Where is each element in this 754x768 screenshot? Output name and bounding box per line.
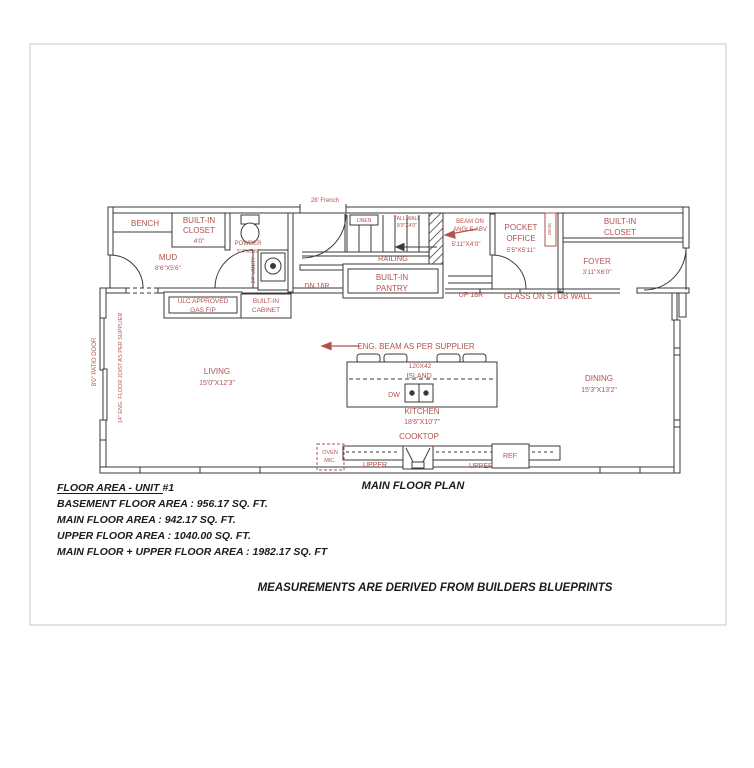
upper-area-line: UPPER FLOOR AREA : 1040.00 SQ. FT. xyxy=(57,530,251,542)
beam-angle-label: ANGLE ABV xyxy=(453,227,487,233)
tall-wall-dims: 8'9"X4'0" xyxy=(397,223,417,229)
island-label: ISLAND xyxy=(406,373,431,380)
foyer-dims: 3'11"X6'0" xyxy=(582,269,612,276)
beam-angle-dims: 5'11"X4'0" xyxy=(451,241,481,248)
closet-left-label: CLOSET xyxy=(183,226,215,235)
railing-label: RAILING xyxy=(378,254,408,263)
black-text: MAIN FLOOR PLAN FLOOR AREA - UNIT #1 BAS… xyxy=(57,480,613,594)
dining-label: DINING xyxy=(585,374,613,383)
glass-stub-label: GLASS ON STUB WALL xyxy=(504,292,593,301)
stair-arrow-head xyxy=(396,244,404,251)
gas-fp-label: GAS F/P xyxy=(190,307,216,314)
floor-plan-drawing: BENCH BUILT-IN CLOSET 4'0" MUD 8'6"X5'6"… xyxy=(0,0,754,768)
beam-angle-label: BEAM ON xyxy=(456,219,484,225)
foyer-label: FOYER xyxy=(583,257,611,266)
floor-plan-sheet: BENCH BUILT-IN CLOSET 4'0" MUD 8'6"X5'6"… xyxy=(0,0,754,768)
french-door-label: 28' French xyxy=(311,198,339,204)
pocket-office-label: OFFICE xyxy=(506,234,535,243)
hood-inner xyxy=(412,462,424,468)
pocket-office-label: POCKET xyxy=(505,223,538,232)
desk-label: DESK xyxy=(547,223,552,235)
vanity-label: 24" VANITY xyxy=(251,256,257,283)
angled-beam-hatch xyxy=(429,213,443,265)
stair-down-label: DN 16R xyxy=(305,283,330,290)
eng-beam-arrow-head xyxy=(322,343,331,350)
dishwasher-label: DW xyxy=(388,392,400,399)
closet-right-label: BUILT-IN xyxy=(604,217,637,226)
area-summary-heading: FLOOR AREA - UNIT #1 xyxy=(57,482,174,494)
eng-beam-label: ENG. BEAM AS PER SUPPLIER xyxy=(357,342,475,351)
living-dims: 15'0"X12'3" xyxy=(199,380,235,387)
kitchen-dims: 18'6"X10'7" xyxy=(404,419,440,426)
cabinet-label: CABINET xyxy=(252,307,280,314)
powder-dims: 5'4"X5'6" xyxy=(237,249,259,255)
floor-joist-label: 14" ENG. FLOOR JOIST AS PER SUPPLIER xyxy=(118,313,124,424)
powder-door-arc xyxy=(215,250,253,288)
mud-dims: 8'6"X5'6" xyxy=(155,265,182,272)
office-door-arc xyxy=(492,255,526,289)
mic-label: MIC. xyxy=(324,458,336,464)
closet-right-label: CLOSET xyxy=(604,228,636,237)
closet-left-dims: 4'0" xyxy=(194,238,205,245)
pocket-office-dims: 5'5"X5'11" xyxy=(506,247,536,254)
pantry-label: BUILT-IN xyxy=(376,273,409,282)
disclaimer-text: MEASUREMENTS ARE DERIVED FROM BUILDERS B… xyxy=(258,582,613,594)
toilet-bowl xyxy=(241,223,259,243)
pantry-label: PANTRY xyxy=(376,284,408,293)
main-area-line: MAIN FLOOR AREA : 942.17 SQ. FT. xyxy=(57,514,236,526)
oven-label: OVEN xyxy=(322,450,338,456)
patio-door-label: 8'0" PATIO DOOR xyxy=(92,337,98,386)
linen-label: LINEN xyxy=(357,218,372,224)
tall-wall-label: TALL WALL xyxy=(394,216,420,222)
fridge-label: REF xyxy=(503,453,517,460)
vanity-drain xyxy=(271,264,276,269)
bench-label: BENCH xyxy=(131,219,159,228)
gas-fp-label: ULC APPROVED xyxy=(178,298,229,305)
closet-left-label: BUILT-IN xyxy=(183,216,216,225)
front-door-arc xyxy=(644,248,686,290)
mud-entry-door-arc xyxy=(110,255,143,288)
cooktop-label: COOKTOP xyxy=(399,432,439,441)
stair-up-label: UP 18R xyxy=(459,292,483,299)
combined-area-line: MAIN FLOOR + UPPER FLOOR AREA : 1982.17 … xyxy=(57,546,329,558)
kitchen-label: KITCHEN xyxy=(404,407,439,416)
oven-mic-box xyxy=(317,444,344,470)
upper-cab-right-label: UPPER xyxy=(469,463,493,470)
upper-cab-left-label: UPPER xyxy=(363,462,387,469)
island-size-label: 120X42 xyxy=(409,363,432,370)
mud-label: MUD xyxy=(159,253,177,262)
powder-label: POWDER xyxy=(235,241,263,247)
french-door-arc xyxy=(302,214,346,258)
dining-dims: 15'3"X13'2" xyxy=(581,387,617,394)
basement-area-line: BASEMENT FLOOR AREA : 956.17 SQ. FT. xyxy=(57,498,268,510)
living-label: LIVING xyxy=(204,367,230,376)
plan-title: MAIN FLOOR PLAN xyxy=(362,480,466,492)
cabinet-label: BUILT-IN xyxy=(253,298,280,305)
